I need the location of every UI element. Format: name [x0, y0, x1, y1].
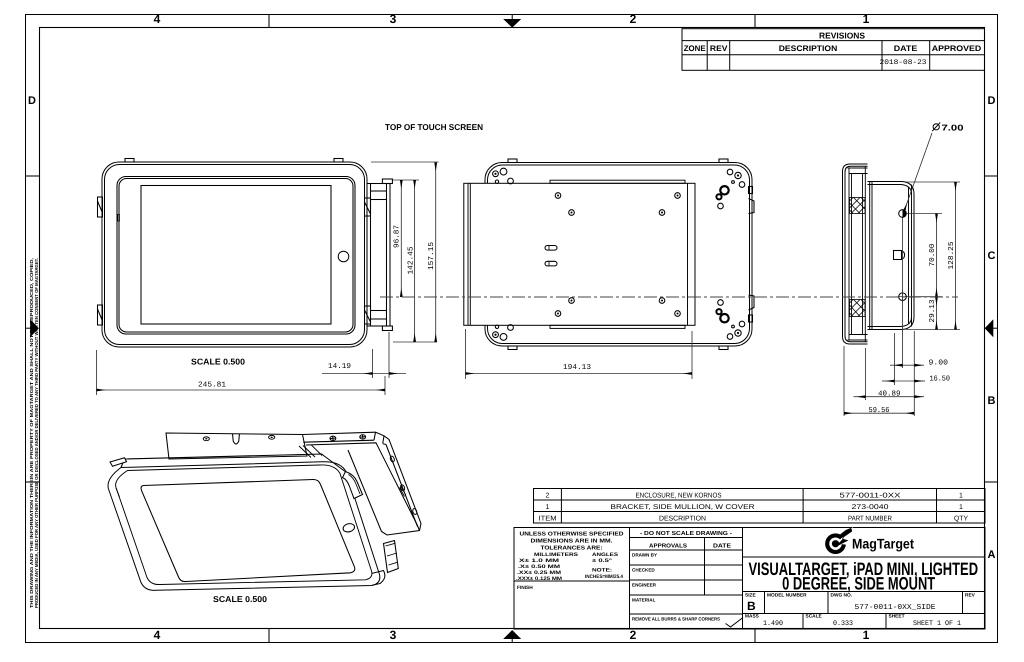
svg-text:3: 3	[390, 12, 397, 26]
svg-text:PART NUMBER: PART NUMBER	[848, 515, 892, 522]
svg-text:40.89: 40.89	[878, 390, 901, 399]
svg-text:REVISIONS: REVISIONS	[819, 31, 865, 41]
svg-text:UNLESS OTHERWISE SPECIFIED: UNLESS OTHERWISE SPECIFIED	[520, 532, 624, 538]
svg-text:2: 2	[546, 492, 550, 499]
svg-text:4: 4	[154, 12, 161, 26]
svg-text:ITEM: ITEM	[539, 515, 557, 522]
svg-text:MASS: MASS	[745, 613, 760, 619]
svg-text:DESCRIPTION: DESCRIPTION	[659, 515, 706, 522]
svg-text:SCALE 0.500: SCALE 0.500	[191, 357, 245, 367]
svg-text:ZONE: ZONE	[684, 44, 707, 53]
svg-text:1: 1	[959, 492, 963, 499]
svg-text:SCALE 0.500: SCALE 0.500	[213, 594, 267, 604]
svg-text:± 0.5°: ± 0.5°	[592, 558, 612, 564]
svg-text:CHECKED: CHECKED	[632, 568, 655, 573]
svg-text:245.81: 245.81	[198, 381, 227, 390]
svg-text:DESCRIPTION: DESCRIPTION	[779, 44, 838, 53]
svg-text:SCALE: SCALE	[806, 613, 823, 619]
svg-text:REV: REV	[965, 593, 976, 599]
svg-text:DATE: DATE	[894, 44, 918, 53]
svg-text:- DO NOT SCALE DRAWING -: - DO NOT SCALE DRAWING -	[640, 530, 732, 537]
svg-text:273-0040: 273-0040	[852, 504, 889, 511]
svg-text:D: D	[28, 95, 36, 107]
svg-text:QTY: QTY	[954, 515, 968, 522]
svg-text:APPROVALS: APPROVALS	[649, 543, 687, 550]
svg-text:29.13: 29.13	[928, 299, 937, 322]
svg-text:TOP OF TOUCH SCREEN: TOP OF TOUCH SCREEN	[385, 122, 483, 132]
svg-text:157.15: 157.15	[428, 241, 436, 270]
svg-text:.XXX± 0.125 MM: .XXX± 0.125 MM	[516, 576, 562, 582]
svg-text:REMOVE ALL BURRS & SHARP CORNE: REMOVE ALL BURRS & SHARP CORNERS	[632, 617, 720, 622]
svg-text:DIMENSIONS ARE IN MM.: DIMENSIONS ARE IN MM.	[531, 539, 614, 545]
svg-text:7.00: 7.00	[942, 123, 964, 133]
svg-text:1: 1	[959, 504, 963, 511]
svg-text:B: B	[747, 599, 756, 613]
svg-text:DATE: DATE	[713, 544, 731, 550]
svg-text:MagTarget: MagTarget	[852, 536, 914, 552]
svg-text:B: B	[988, 395, 996, 407]
svg-text:FINISH: FINISH	[517, 585, 533, 591]
svg-text:3: 3	[390, 628, 397, 642]
svg-text:PRODUCED IN ANY MEDIA, USED FO: PRODUCED IN ANY MEDIA, USED FOR ANY OTHE…	[34, 258, 39, 608]
svg-text:1: 1	[546, 504, 550, 511]
svg-text:1: 1	[863, 628, 870, 642]
svg-text:BRACKET, SIDE MULLION, W COVER: BRACKET, SIDE MULLION, W COVER	[611, 504, 755, 511]
svg-text:0.333: 0.333	[833, 620, 853, 628]
svg-text:96.87: 96.87	[393, 225, 402, 248]
svg-text:194.13: 194.13	[563, 363, 592, 372]
svg-text:ENCLOSURE, NEW KORNOS: ENCLOSURE, NEW KORNOS	[636, 492, 722, 499]
svg-text:MATERIAL: MATERIAL	[632, 598, 656, 603]
svg-text:SIZE: SIZE	[745, 593, 756, 599]
svg-text:1.490: 1.490	[763, 620, 783, 628]
svg-text:INCHES=MM/25.4: INCHES=MM/25.4	[585, 574, 623, 580]
svg-text:C: C	[988, 250, 996, 262]
svg-text:0 DEGREE, SIDE MOUNT: 0 DEGREE, SIDE MOUNT	[782, 574, 935, 594]
svg-text:59.56: 59.56	[869, 406, 890, 415]
svg-text:2: 2	[630, 12, 637, 26]
svg-text:REV: REV	[710, 44, 728, 53]
svg-text:1: 1	[863, 12, 870, 26]
svg-text:14.19: 14.19	[328, 362, 351, 371]
svg-text:2: 2	[630, 628, 637, 642]
svg-text:577-0011-0XX: 577-0011-0XX	[840, 492, 901, 499]
svg-text:SHEET: SHEET	[889, 613, 905, 619]
svg-text:142.45: 142.45	[407, 246, 416, 275]
svg-text:SHEET 1 OF 1: SHEET 1 OF 1	[913, 620, 961, 628]
svg-text:DWG NO.: DWG NO.	[831, 593, 853, 599]
svg-text:ENGINEER: ENGINEER	[632, 583, 657, 588]
svg-text:16.50: 16.50	[930, 374, 951, 383]
svg-text:APPROVED: APPROVED	[932, 44, 982, 53]
svg-text:D: D	[988, 95, 996, 107]
svg-text:A: A	[988, 549, 996, 561]
svg-text:2018-08-23: 2018-08-23	[880, 59, 927, 67]
svg-text:4: 4	[154, 628, 161, 642]
svg-text:TOLERANCES ARE:: TOLERANCES ARE:	[541, 546, 603, 552]
svg-text:DRAWN BY: DRAWN BY	[632, 553, 657, 558]
svg-text:128.25: 128.25	[947, 241, 956, 270]
svg-text:577-0011-0XX_SIDE: 577-0011-0XX_SIDE	[855, 603, 937, 612]
svg-text:MODEL NUMBER: MODEL NUMBER	[767, 593, 807, 599]
svg-text:9.00: 9.00	[929, 359, 949, 368]
svg-text:70.00: 70.00	[928, 243, 937, 266]
svg-text:NOTE:: NOTE:	[592, 568, 612, 574]
